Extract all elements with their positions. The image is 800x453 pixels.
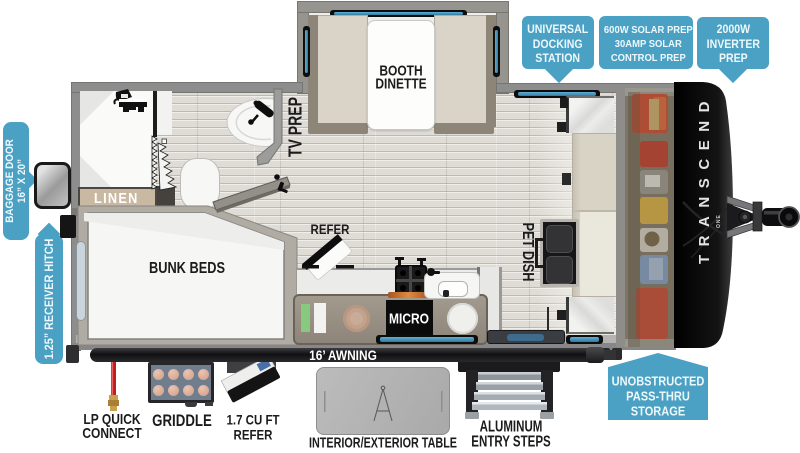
svg-text:TRANSCEND: TRANSCEND	[696, 97, 713, 264]
svg-text:ONE: ONE	[716, 214, 722, 228]
